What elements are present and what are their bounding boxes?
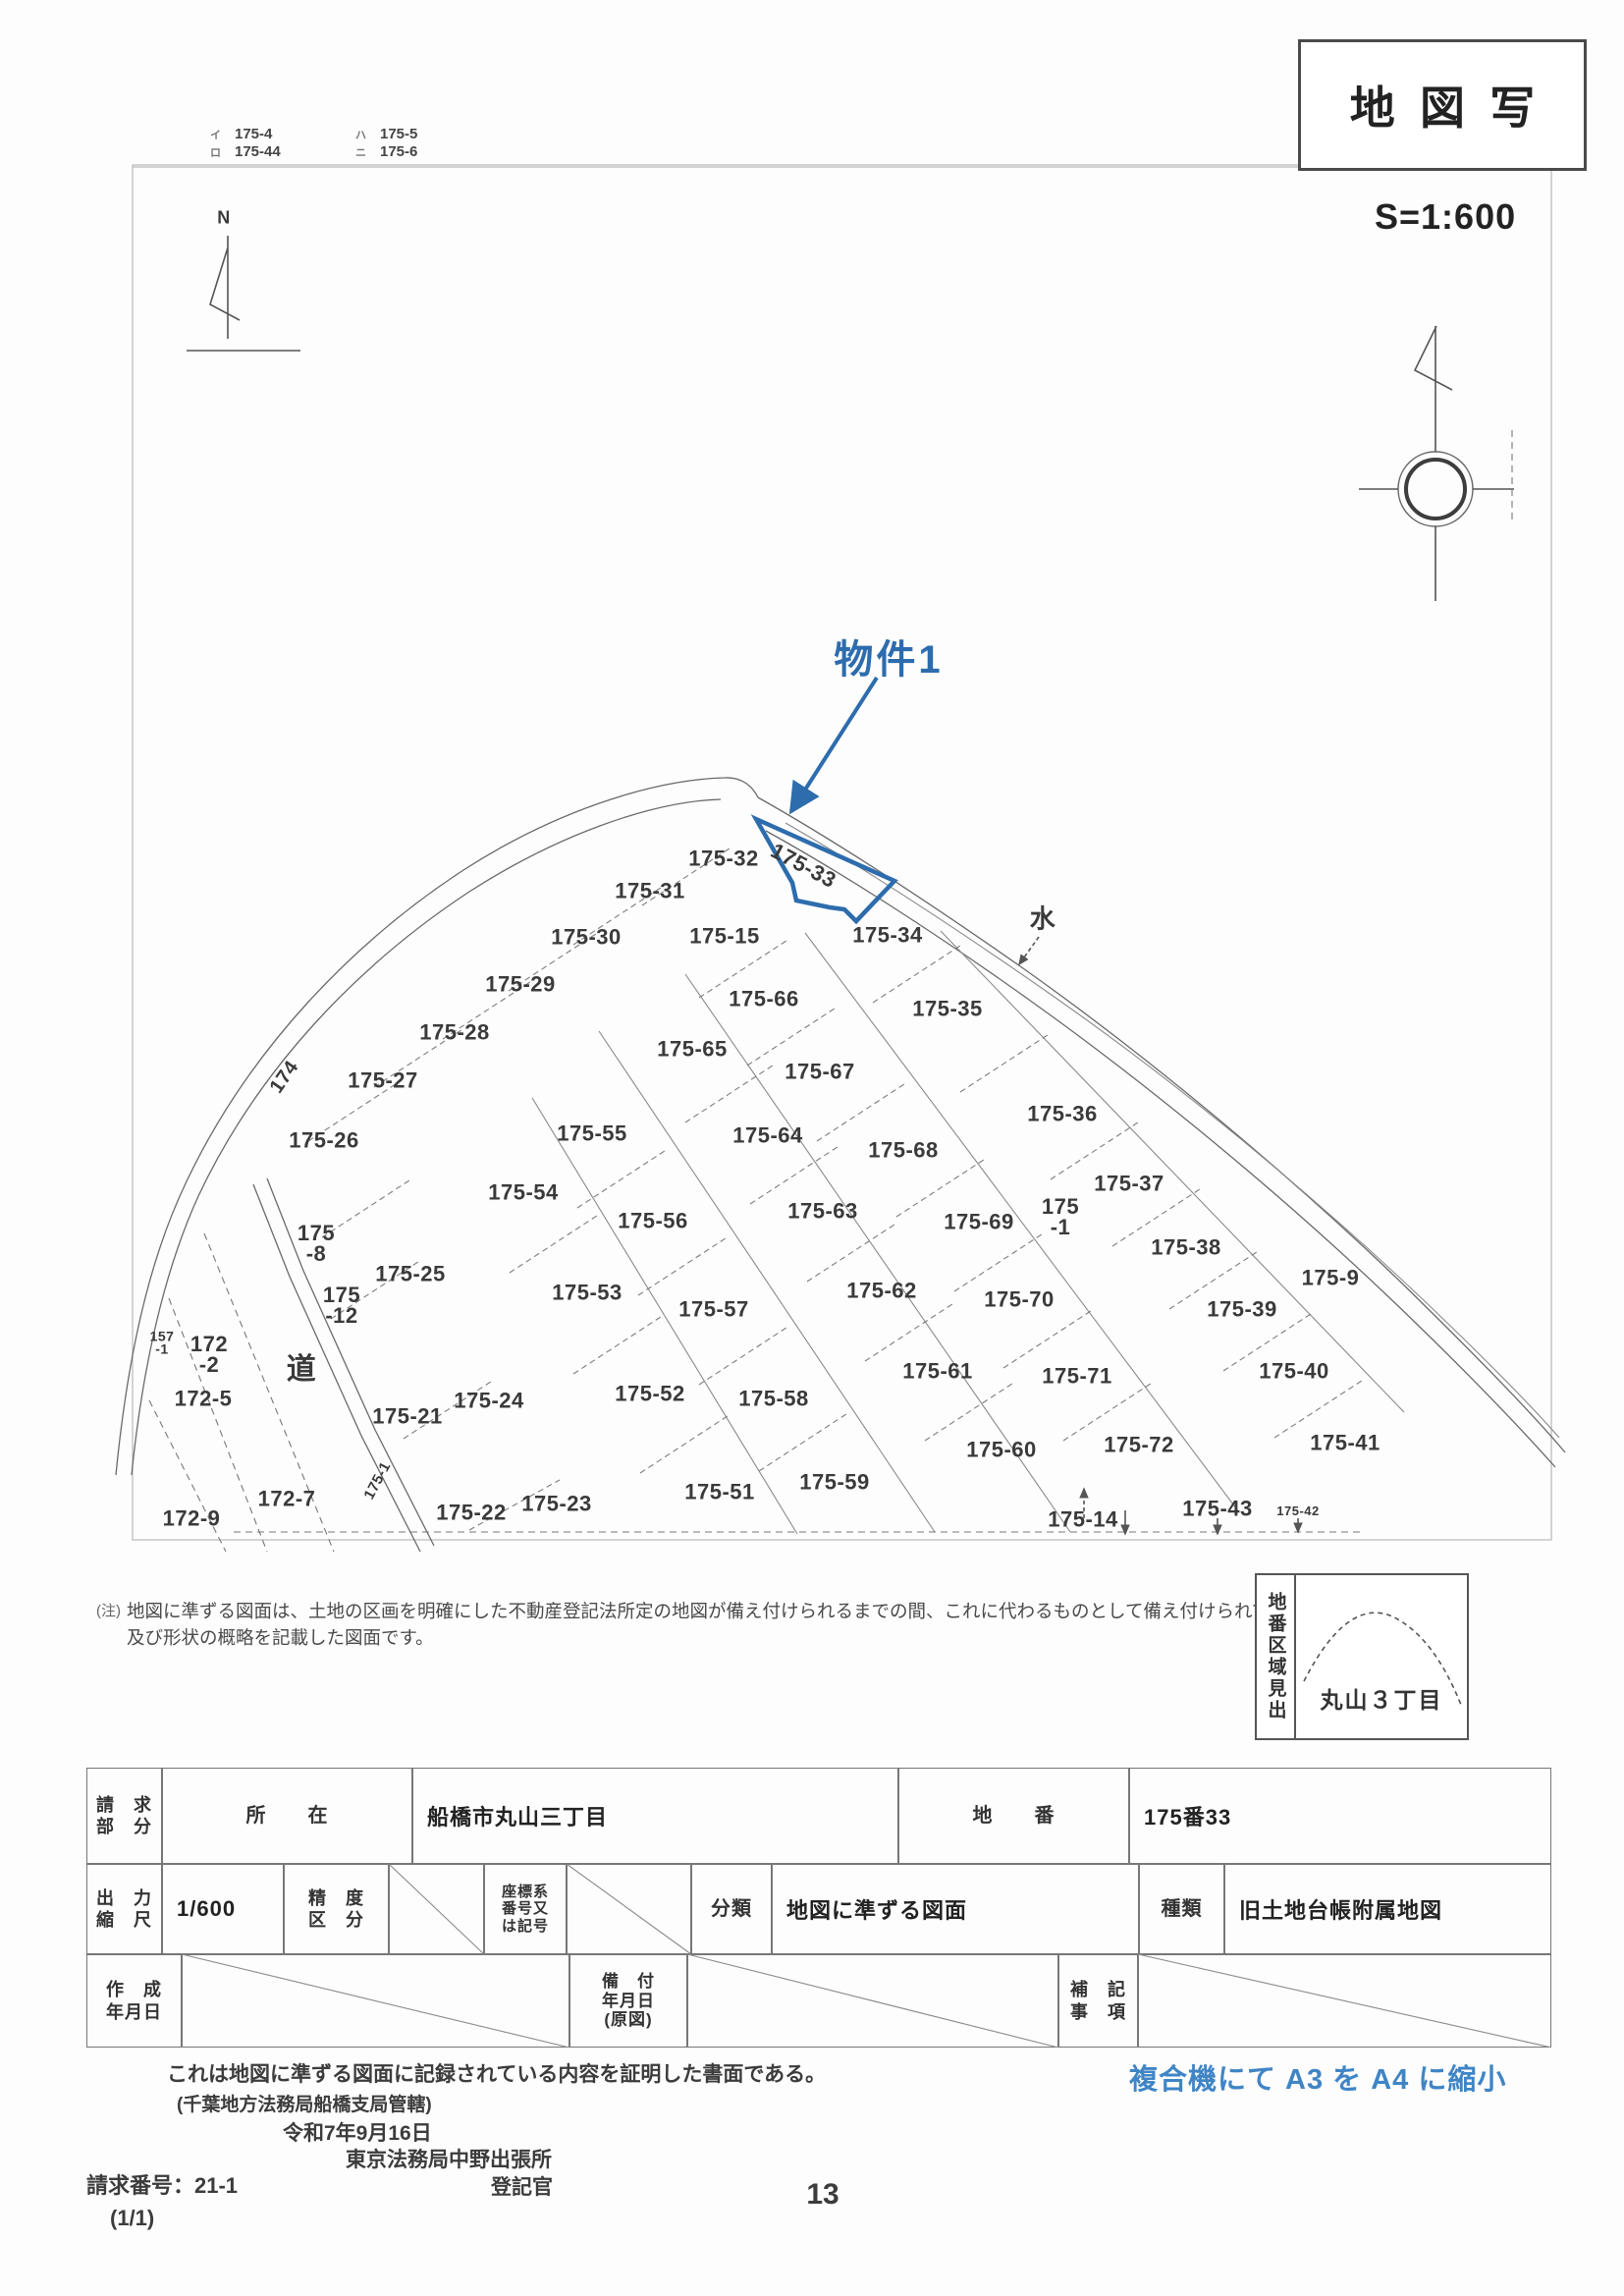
parcel-label-175-62: 175-62 (846, 1282, 917, 1302)
parcel-label-175-1: 175-1 (362, 1460, 394, 1503)
parcel-label-175-53: 175-53 (552, 1284, 623, 1304)
registrar-label: 登記官 (491, 2171, 553, 2201)
parcel-label-175-61: 175-61 (902, 1362, 973, 1383)
parcel-label-175-41: 175-41 (1310, 1434, 1380, 1454)
parcel-label-175-32: 175-32 (688, 849, 759, 870)
parcel-label-175-9: 175-9 (1302, 1269, 1360, 1289)
district-index-box: 地番区域見出 丸山３丁目 (1255, 1573, 1469, 1740)
parcel-label-175-72: 175-72 (1104, 1436, 1174, 1456)
page-fraction: (1/1) (110, 2206, 154, 2231)
parcel-label-175-35: 175-35 (912, 1000, 983, 1020)
copy-reduction-note: 複合機にて A3 を A4 に縮小 (1129, 2056, 1506, 2098)
parcel-label-175-34: 175-34 (852, 926, 923, 947)
parcel-label-174: 174 (267, 1058, 302, 1096)
page-number: 13 (806, 2178, 839, 2212)
parcel-label-175-36: 175-36 (1027, 1105, 1098, 1125)
parcel-label-175-28: 175-28 (419, 1023, 490, 1044)
certification-statement: これは地図に準ずる図面に記録されている内容を証明した書面である。 (167, 2058, 826, 2088)
parcel-label-175-51: 175-51 (684, 1483, 755, 1503)
parcel-label-175-31: 175-31 (615, 882, 685, 902)
cadastral-map-document: 地図写 S=1:600 イ 175-4 ロ 175-44 ハ 175-5 ニ 1… (0, 0, 1624, 2296)
parcel-label-175-64: 175-64 (732, 1126, 803, 1147)
parcel-label-175-30: 175-30 (551, 928, 622, 949)
parcel-label-172-2: 172 -2 (190, 1335, 228, 1376)
parcel-label-175-24: 175-24 (454, 1392, 524, 1412)
parcel-label-175-37: 175-37 (1094, 1175, 1164, 1195)
issuing-office: 東京法務局中野出張所 (346, 2144, 552, 2173)
parcel-label-175-52: 175-52 (615, 1385, 685, 1405)
empty-cell-slashes (86, 1768, 1551, 2048)
parcel-label-175-42: 175-42 (1276, 1505, 1319, 1517)
parcel-label-175-68: 175-68 (868, 1141, 939, 1162)
parcel-label-175-43: 175-43 (1182, 1500, 1253, 1520)
parcel-label-175-8: 175 -8 (298, 1224, 335, 1265)
parcel-label-175-54: 175-54 (488, 1183, 559, 1204)
jurisdiction-note: (千葉地方法務局船橋支局管轄) (177, 2090, 432, 2116)
parcel-label-175-15: 175-15 (689, 927, 760, 948)
parcel-label-175-59: 175-59 (799, 1473, 870, 1494)
parcel-label-175-21: 175-21 (372, 1407, 443, 1428)
parcel-label-157-1: 157 -1 (150, 1331, 175, 1357)
parcel-label-175-23: 175-23 (521, 1495, 592, 1515)
parcel-label-175-63: 175-63 (787, 1202, 858, 1223)
parcel-label-175-40: 175-40 (1259, 1362, 1329, 1383)
parcel-label-175-66: 175-66 (729, 990, 799, 1011)
parcel-label-172-7: 172-7 (258, 1490, 316, 1510)
parcel-label-175-1: 175 -1 (1042, 1197, 1079, 1238)
parcel-label-水: 水 (1030, 907, 1056, 932)
parcel-label-175-39: 175-39 (1207, 1300, 1277, 1321)
parcel-label-175-29: 175-29 (485, 975, 556, 996)
parcel-label-172-9: 172-9 (163, 1509, 221, 1530)
parcel-label-175-14: 175-14 (1048, 1510, 1118, 1531)
parcel-label-175-12: 175 -12 (323, 1285, 360, 1327)
parcel-label-道: 道 (287, 1356, 317, 1385)
attribute-table: 請 求 部 分 所 在 船橋市丸山三丁目 地 番 175番33 出 力 縮 尺 … (86, 1768, 1551, 2048)
parcel-label-175-70: 175-70 (984, 1290, 1055, 1311)
note-prefix: (注) (96, 1599, 121, 1652)
parcel-label-175-65: 175-65 (657, 1040, 728, 1061)
request-number: 請求番号：21-1 (86, 2168, 238, 2200)
parcel-label-175-22: 175-22 (436, 1503, 507, 1524)
parcel-label-175-57: 175-57 (678, 1300, 749, 1321)
parcel-label-175-58: 175-58 (738, 1390, 809, 1410)
district-name: 丸山３丁目 (1321, 1681, 1443, 1715)
parcel-label-175-55: 175-55 (557, 1124, 627, 1145)
parcel-label-175-26: 175-26 (289, 1131, 359, 1152)
parcel-label-175-60: 175-60 (966, 1441, 1037, 1461)
parcel-label-175-56: 175-56 (618, 1212, 688, 1232)
issue-date: 令和7年9月16日 (283, 2117, 432, 2147)
parcel-label-175-67: 175-67 (785, 1063, 855, 1083)
parcel-label-175-69: 175-69 (944, 1213, 1014, 1233)
district-index-header: 地番区域見出 (1257, 1575, 1296, 1738)
parcel-label-175-38: 175-38 (1151, 1238, 1221, 1259)
parcel-label-175-25: 175-25 (375, 1265, 446, 1285)
parcel-label-172-5: 172-5 (175, 1390, 233, 1410)
parcel-label-175-71: 175-71 (1042, 1367, 1112, 1388)
parcel-label-175-33: 175-33 (768, 841, 839, 892)
parcel-label-175-27: 175-27 (348, 1071, 418, 1092)
